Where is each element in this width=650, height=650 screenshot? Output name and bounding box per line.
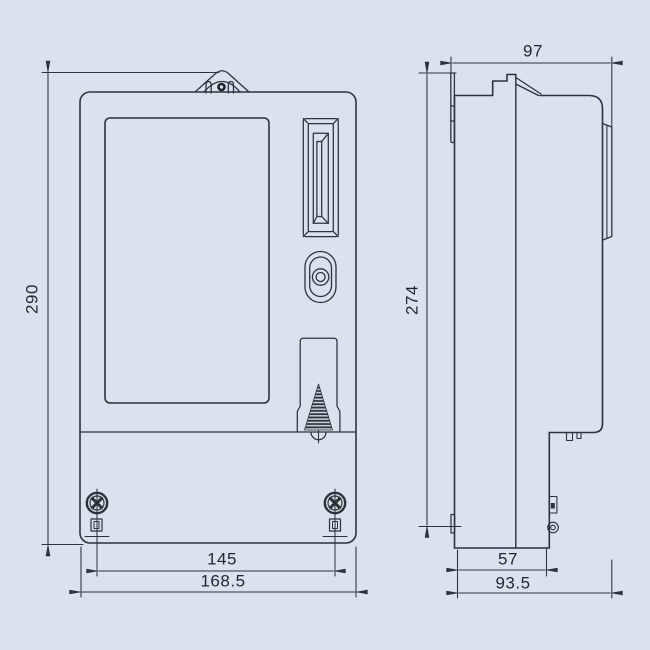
dim-front-height <box>42 73 219 545</box>
meter-drawing-svg <box>0 0 650 650</box>
meter-body-outline <box>80 92 356 543</box>
dim-label-front-height: 290 <box>24 284 41 314</box>
seal-triangle <box>305 384 333 430</box>
mounting-screw-left <box>85 489 109 576</box>
bracket-slope <box>516 78 541 96</box>
front-edge <box>549 109 602 433</box>
dimensional-drawing-canvas: 290 145 168.5 97 274 57 93.5 <box>0 0 650 650</box>
dim-label-side-depth-top: 97 <box>523 43 543 60</box>
card-slot-opening <box>313 133 328 223</box>
cover-hook-tab <box>577 433 581 439</box>
push-button <box>305 252 336 303</box>
dim-label-mounting-height: 274 <box>404 285 421 315</box>
front-view <box>42 71 356 597</box>
meter-body <box>80 92 356 543</box>
mounting-screw-right <box>323 489 347 576</box>
button-cap <box>312 269 328 285</box>
card-slot <box>303 119 338 237</box>
card-slot-bevels <box>313 133 328 223</box>
cover-hook-tab <box>567 433 573 441</box>
dim-label-front-width: 168.5 <box>200 573 245 590</box>
seal-cover <box>297 338 340 443</box>
top-profile <box>455 75 516 96</box>
dim-label-terminal-depth: 57 <box>498 551 518 568</box>
display-window <box>105 118 269 403</box>
front-top-corner <box>540 96 603 110</box>
dim-label-overall-depth: 93.5 <box>495 575 530 592</box>
side-view <box>419 57 612 598</box>
dim-label-screw-spacing: 145 <box>207 551 237 568</box>
dim-overall-depth <box>458 550 612 598</box>
side-body <box>455 75 612 549</box>
hanging-bracket-icon <box>195 71 249 93</box>
display-window-outline <box>105 118 269 403</box>
